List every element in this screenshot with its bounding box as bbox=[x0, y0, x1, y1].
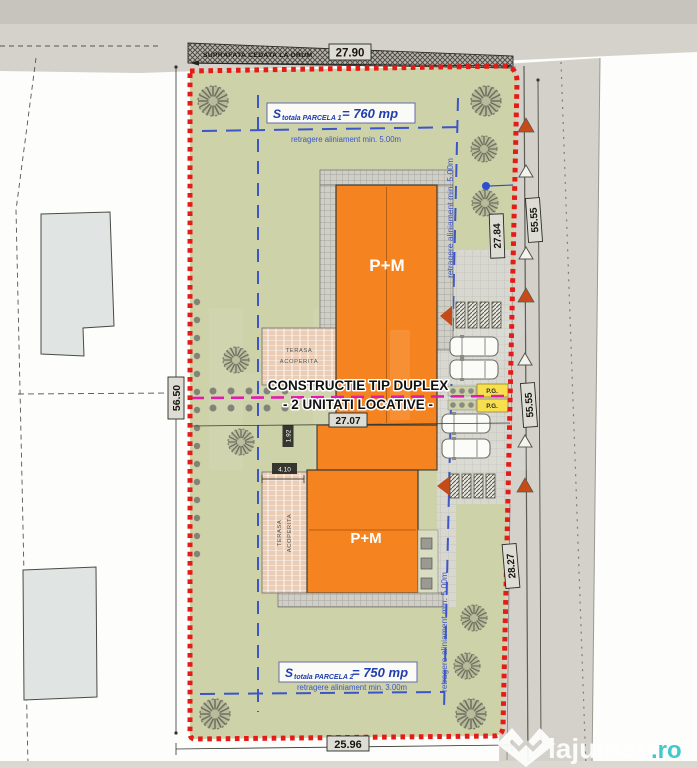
dimension-left-value: 56.50 bbox=[171, 385, 183, 411]
parcel2-setback-note: retragere aliniament min. 3.00m bbox=[297, 683, 407, 692]
side-setback-note-upper: retragere aliniament min. 5.00m bbox=[445, 158, 455, 278]
parcel1-setback-note: retragere aliniament min. 5.00m bbox=[291, 135, 401, 144]
dimension-road-upper: 55.55 bbox=[525, 198, 542, 243]
terrace-upper-label-1: TERASA bbox=[286, 348, 313, 354]
building-unit1-label: P+M bbox=[369, 256, 404, 275]
dimension-right-upper: 27.84 bbox=[489, 214, 505, 258]
dimension-bottom-value: 25.96 bbox=[334, 739, 362, 751]
parcel2-area: S totala PARCELA 2 = 750 mp retragere al… bbox=[279, 662, 417, 692]
site-plan-drawing: SUPRAFATA CEDATA LA DRUM 27.90 HZ bbox=[0, 0, 697, 768]
terrace-upper: TERASA ACOPERITA bbox=[262, 328, 336, 385]
parcel1-area-value: = 760 mp bbox=[342, 106, 398, 121]
dimension-offset-value: 1.92 bbox=[286, 429, 293, 442]
terrace-lower-label-1: TERASA bbox=[277, 520, 283, 547]
brand-watermark-tld: .ro bbox=[651, 737, 682, 764]
parcel2-area-sub: totala PARCELA 2 bbox=[294, 674, 354, 681]
parcel1-area-sub: totala PARCELA 1 bbox=[282, 115, 342, 122]
svg-text:27.84: 27.84 bbox=[492, 223, 504, 249]
terrace-lower: TERASA ACOPERITA bbox=[262, 472, 307, 593]
dimension-terrace-value: 4.10 bbox=[278, 467, 291, 474]
parcel2-area-prefix: S bbox=[285, 666, 293, 680]
pg-label-1: P.G. bbox=[486, 388, 498, 395]
ceded-strip-label: SUPRAFATA CEDATA LA DRUM bbox=[203, 52, 312, 59]
dimension-road-lower: 55.55 bbox=[520, 383, 537, 428]
site-plan-canvas: SUPRAFATA CEDATA LA DRUM 27.90 HZ bbox=[0, 0, 697, 768]
dimension-split-value: 27.07 bbox=[335, 416, 360, 427]
terrace-upper-label-2: ACOPERITA bbox=[280, 359, 318, 365]
lower-building-sidewalk bbox=[278, 593, 443, 607]
lower-building-steps bbox=[418, 530, 438, 595]
side-setback-note-lower: retragere aliniament min. 5.00m bbox=[439, 572, 449, 692]
construction-title-line1: CONSTRUCTIE TIP DUPLEX bbox=[268, 378, 449, 393]
terrace-lower-label-2: ACOPERITA bbox=[287, 514, 293, 552]
pg-label-2: P.G. bbox=[486, 403, 498, 410]
parcel1-area-prefix: S bbox=[273, 107, 281, 121]
svg-text:28.27: 28.27 bbox=[505, 553, 518, 579]
dimension-top-value: 27.90 bbox=[336, 48, 365, 60]
brand-watermark-name: lajumate bbox=[548, 733, 662, 764]
building-unit2-label: P+M bbox=[350, 530, 381, 547]
neighbour-building-2 bbox=[23, 567, 97, 700]
svg-text:55.55: 55.55 bbox=[524, 392, 537, 418]
parcel2-area-value: = 750 mp bbox=[352, 665, 408, 680]
svg-text:55.55: 55.55 bbox=[529, 207, 542, 233]
construction-title-line2: - 2 UNITATI LOCATIVE - bbox=[283, 397, 433, 412]
